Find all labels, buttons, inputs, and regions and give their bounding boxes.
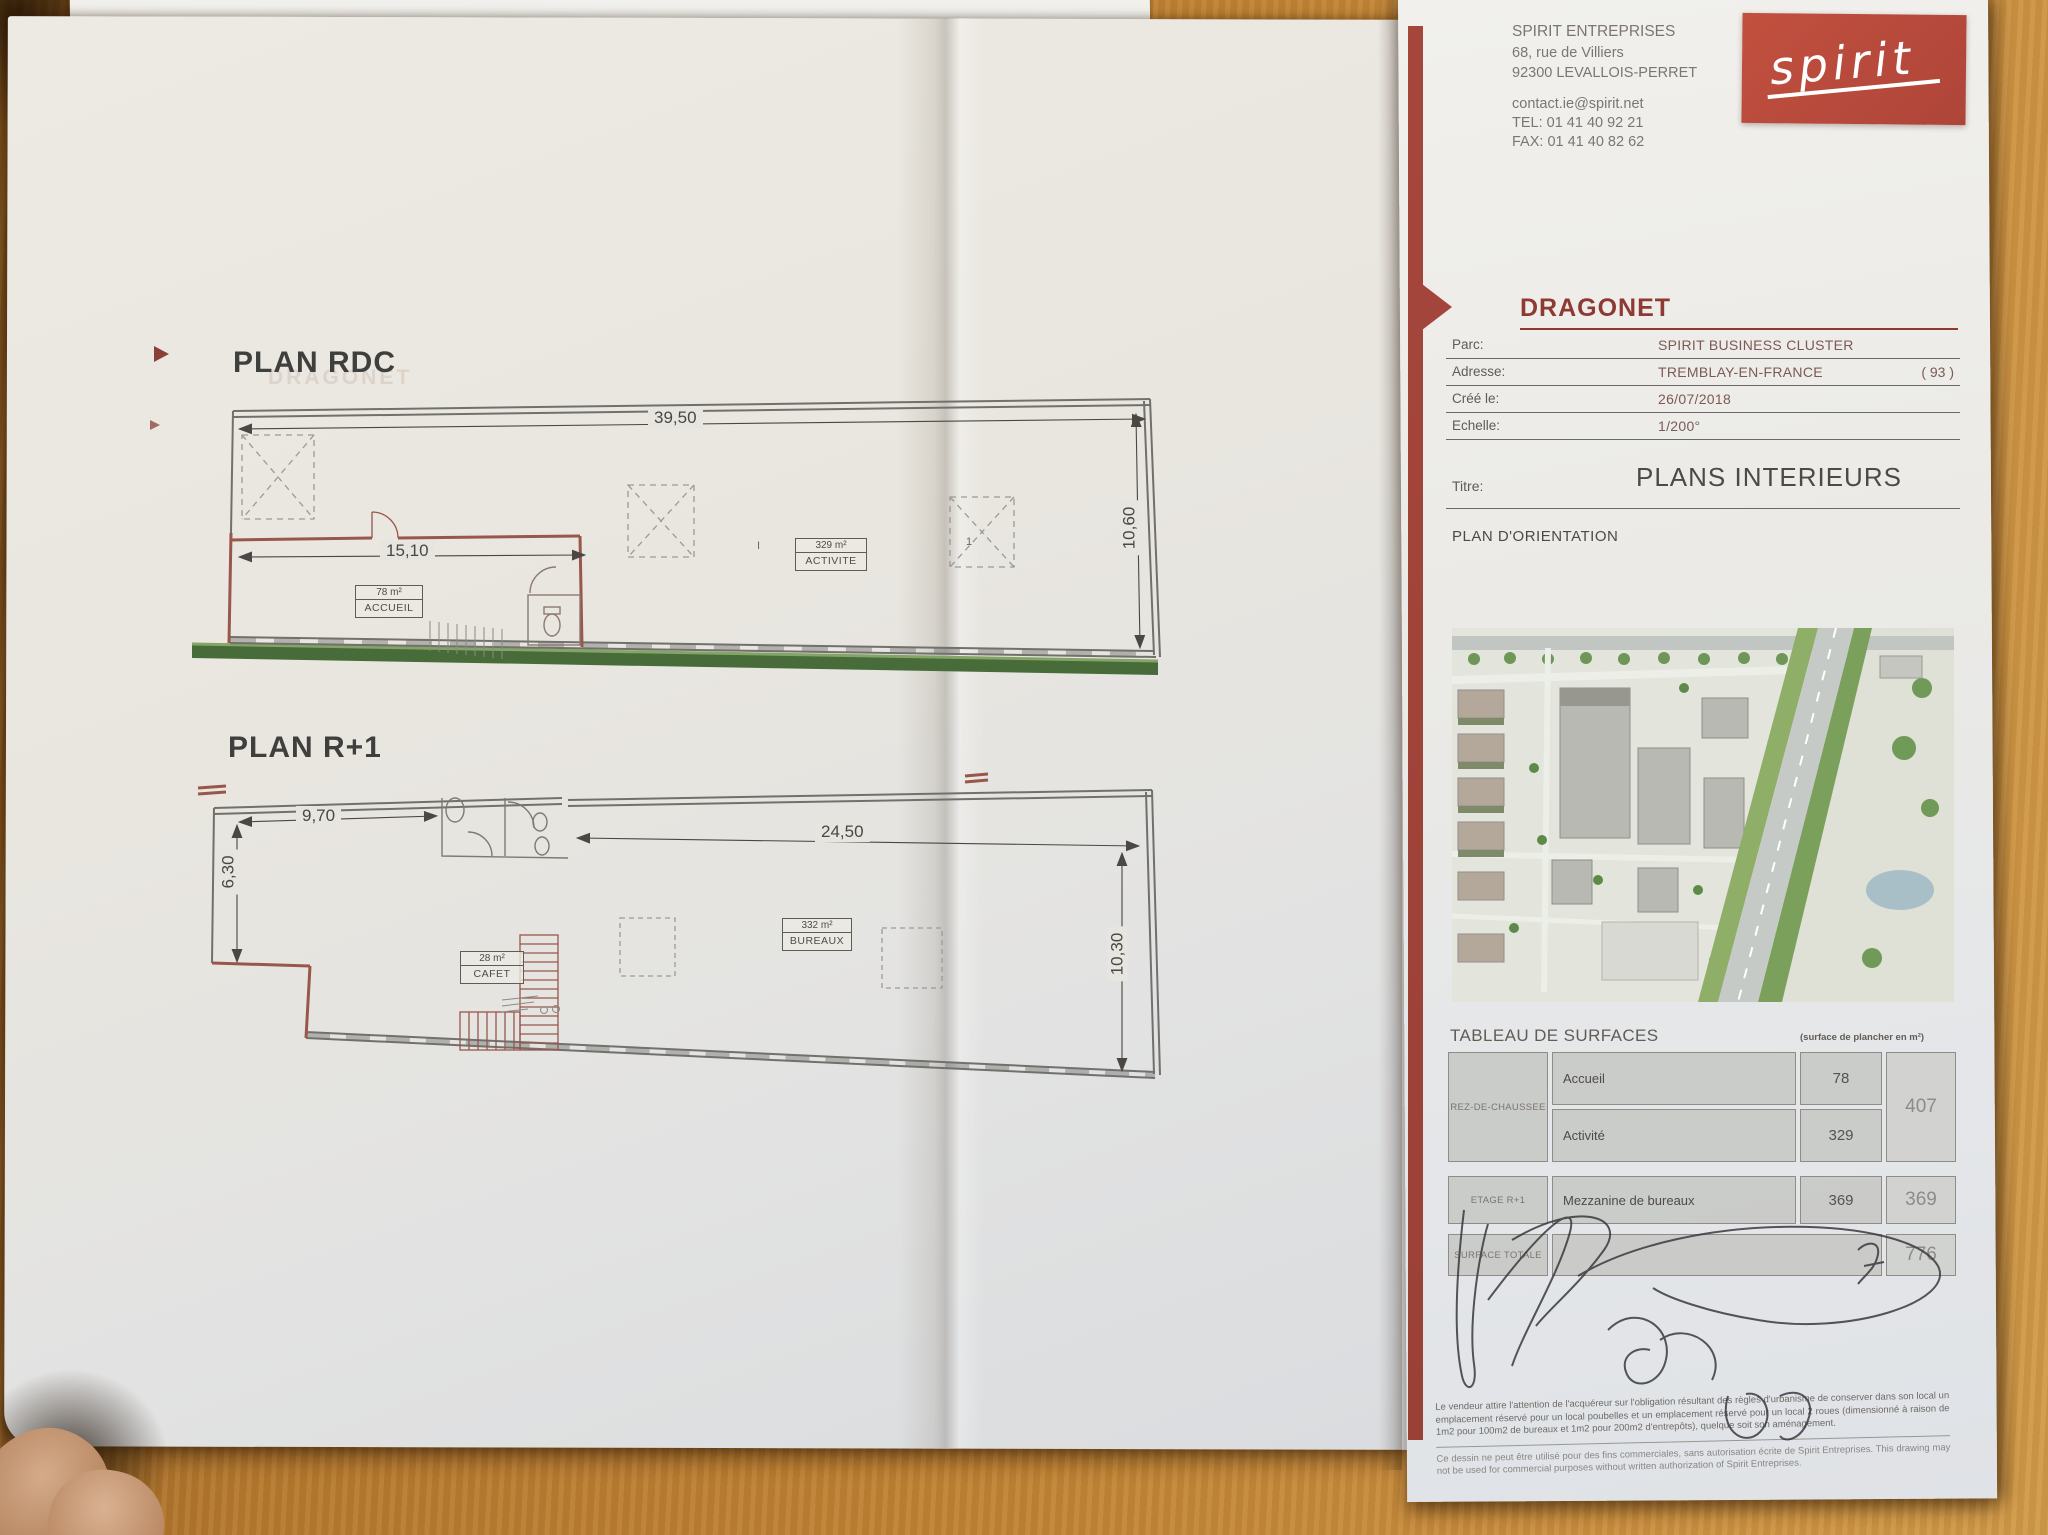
table-subtotal-cell: 407 — [1886, 1052, 1956, 1162]
project-name: DRAGONET — [1520, 294, 1958, 330]
field-cree-le: Créé le: 26/07/2018 — [1446, 386, 1960, 413]
field-echelle: Echelle: 1/200° — [1446, 413, 1960, 440]
r1-dim-top: 24,50 — [815, 822, 870, 842]
titre-label: Titre: — [1452, 478, 1483, 494]
table-room-cell: Accueil — [1552, 1052, 1796, 1105]
surface-table-title: TABLEAU DE SURFACES — [1450, 1026, 1659, 1046]
room-name: ACTIVITE — [796, 553, 866, 570]
plan-rdc-title: PLAN RDC — [233, 346, 396, 380]
field-extra: ( 93 ) — [1921, 364, 1954, 380]
photo-of-plan-document: DRAGONET PLAN RDC — [0, 0, 2048, 1535]
spirit-logo: spirit — [1741, 13, 1966, 125]
r1-dim-left: 9,70 — [296, 806, 341, 826]
field-label: Echelle: — [1452, 418, 1500, 433]
field-label: Créé le: — [1452, 391, 1499, 406]
room-label-cafet: 28 m² CAFET — [460, 951, 524, 984]
site-map-image — [1452, 628, 1954, 1002]
company-address-line2: 92300 LEVALLOIS-PERRET — [1512, 64, 1752, 83]
field-value: TREMBLAY-EN-FRANCE — [1658, 364, 1823, 380]
company-address-line1: 68, rue de Villiers — [1512, 44, 1752, 63]
room-label-accueil: 78 m² ACCUEIL — [355, 585, 423, 618]
table-value-cell: 329 — [1800, 1109, 1882, 1162]
spirit-logo-art: spirit — [1741, 13, 1966, 125]
room-area: 332 m² — [783, 919, 851, 933]
table-room-cell: Activité — [1552, 1109, 1796, 1162]
company-email: contact.ie@spirit.net — [1512, 95, 1752, 114]
plans-page — [4, 16, 1414, 1450]
company-block: SPIRIT ENTREPRISES 68, rue de Villiers 9… — [1512, 22, 1752, 152]
field-label: Adresse: — [1452, 364, 1505, 379]
grid-mark: 1 — [966, 536, 972, 548]
room-name: CAFET — [461, 966, 523, 983]
room-name: BUREAUX — [783, 933, 851, 950]
rdc-dim-right: 10,60 — [1119, 501, 1139, 556]
company-name: SPIRIT ENTREPRISES — [1512, 22, 1752, 42]
rdc-dim-inner: 15,10 — [380, 541, 435, 561]
field-value: 26/07/2018 — [1658, 391, 1731, 407]
surface-table-unit-note: (surface de plancher en m²) — [1800, 1032, 1924, 1043]
room-area: 28 m² — [461, 952, 523, 966]
field-adresse: Adresse: TREMBLAY-EN-FRANCE ( 93 ) — [1446, 359, 1960, 386]
room-name: ACCUEIL — [356, 600, 422, 617]
company-fax: FAX: 01 41 40 82 62 — [1512, 133, 1752, 152]
red-separator-bar — [1408, 26, 1423, 1440]
handwritten-signatures — [1428, 1180, 1973, 1480]
room-area: 329 m² — [796, 539, 866, 553]
floor-plan-rdc-drawing — [150, 385, 1180, 685]
grid-mark: I — [757, 540, 760, 552]
r1-dim-side-left: 6,30 — [219, 849, 239, 894]
r1-dim-side-right: 10,30 — [1107, 927, 1127, 982]
room-label-bureaux: 332 m² BUREAUX — [782, 918, 852, 951]
field-parc: Parc: SPIRIT BUSINESS CLUSTER — [1446, 332, 1960, 359]
rdc-dim-top: 39,50 — [648, 408, 703, 428]
print-mark-icon — [154, 346, 169, 362]
room-area: 78 m² — [356, 586, 422, 600]
company-tel: TEL: 01 41 40 92 21 — [1512, 114, 1752, 133]
field-value: SPIRIT BUSINESS CLUSTER — [1658, 337, 1854, 353]
document-title: PLANS INTERIEURS — [1636, 462, 1902, 493]
field-value: 1/200° — [1658, 418, 1700, 434]
center-fold-crease — [898, 18, 984, 1448]
project-fields: Parc: SPIRIT BUSINESS CLUSTER Adresse: T… — [1446, 332, 1960, 440]
red-arrow-marker — [1422, 284, 1452, 330]
room-label-activite: 329 m² ACTIVITE — [795, 538, 867, 571]
site-map-art — [1452, 628, 1954, 1002]
field-label: Parc: — [1452, 337, 1484, 352]
table-floor-cell: REZ-DE-CHAUSSEE — [1448, 1052, 1548, 1162]
table-value-cell: 78 — [1800, 1052, 1882, 1105]
titre-underline — [1446, 508, 1960, 509]
orientation-subtitle: PLAN D'ORIENTATION — [1452, 528, 1618, 545]
